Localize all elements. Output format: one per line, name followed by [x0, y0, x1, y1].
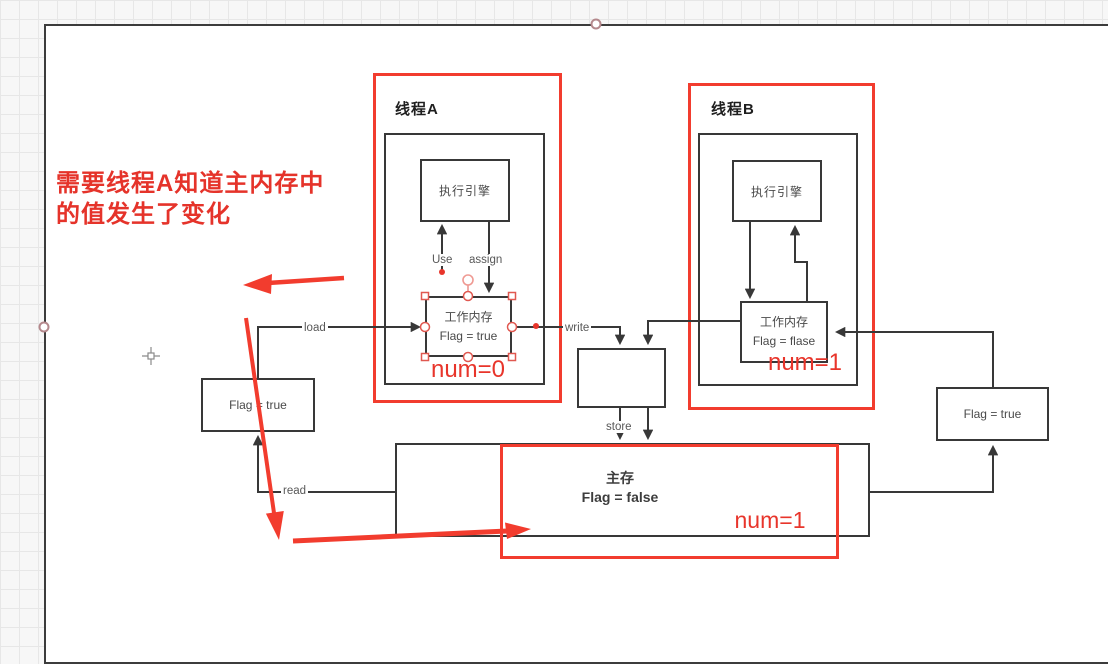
left-flag-label: Flag = true — [229, 398, 287, 412]
store-buffer-box[interactable] — [577, 348, 666, 408]
edge-label-assign: assign — [467, 254, 504, 266]
edge-label-use: Use — [430, 254, 454, 266]
annotation-note: 需要线程A知道主内存中 的值发生了变化 — [56, 168, 324, 230]
thread-a-engine-box[interactable]: 执行引擎 — [420, 159, 510, 222]
thread-b-engine-box[interactable]: 执行引擎 — [732, 160, 822, 222]
thread-b-title: 线程B — [711, 98, 755, 119]
right-flag-label: Flag = true — [964, 407, 1022, 421]
thread-b-working-memory-title: 工作内存 — [753, 313, 815, 332]
thread-a-title: 线程A — [395, 98, 439, 119]
main-memory-text: 主存 Flag = false — [500, 469, 740, 507]
thread-b-engine-label: 执行引擎 — [751, 183, 803, 200]
main-memory-num-label: num=1 — [722, 507, 818, 534]
edge-label-read: read — [281, 485, 308, 497]
annotation-note-line1: 需要线程A知道主内存中 — [56, 168, 324, 199]
thread-b-num-label: num=1 — [760, 349, 850, 377]
canvas-page[interactable] — [44, 24, 1108, 664]
thread-a-working-memory-box[interactable]: 工作内存 Flag = true — [425, 296, 512, 357]
thread-a-engine-label: 执行引擎 — [439, 182, 491, 199]
diagram-canvas: { "annotation": { "note_line1": "需要线程A知道… — [0, 0, 1108, 623]
annotation-note-line2: 的值发生了变化 — [56, 199, 324, 230]
edge-label-load: load — [302, 322, 328, 334]
thread-a-num-label: num=0 — [422, 356, 514, 384]
edge-label-write: write — [563, 322, 591, 334]
right-flag-box[interactable]: Flag = true — [936, 387, 1049, 441]
edge-label-store: store — [604, 421, 634, 433]
main-memory-flag-label: Flag = false — [500, 488, 740, 507]
thread-a-working-memory-flag: Flag = true — [440, 327, 498, 346]
main-memory-title: 主存 — [500, 469, 740, 488]
thread-a-working-memory-title: 工作内存 — [440, 308, 498, 327]
left-flag-box[interactable]: Flag = true — [201, 378, 315, 432]
